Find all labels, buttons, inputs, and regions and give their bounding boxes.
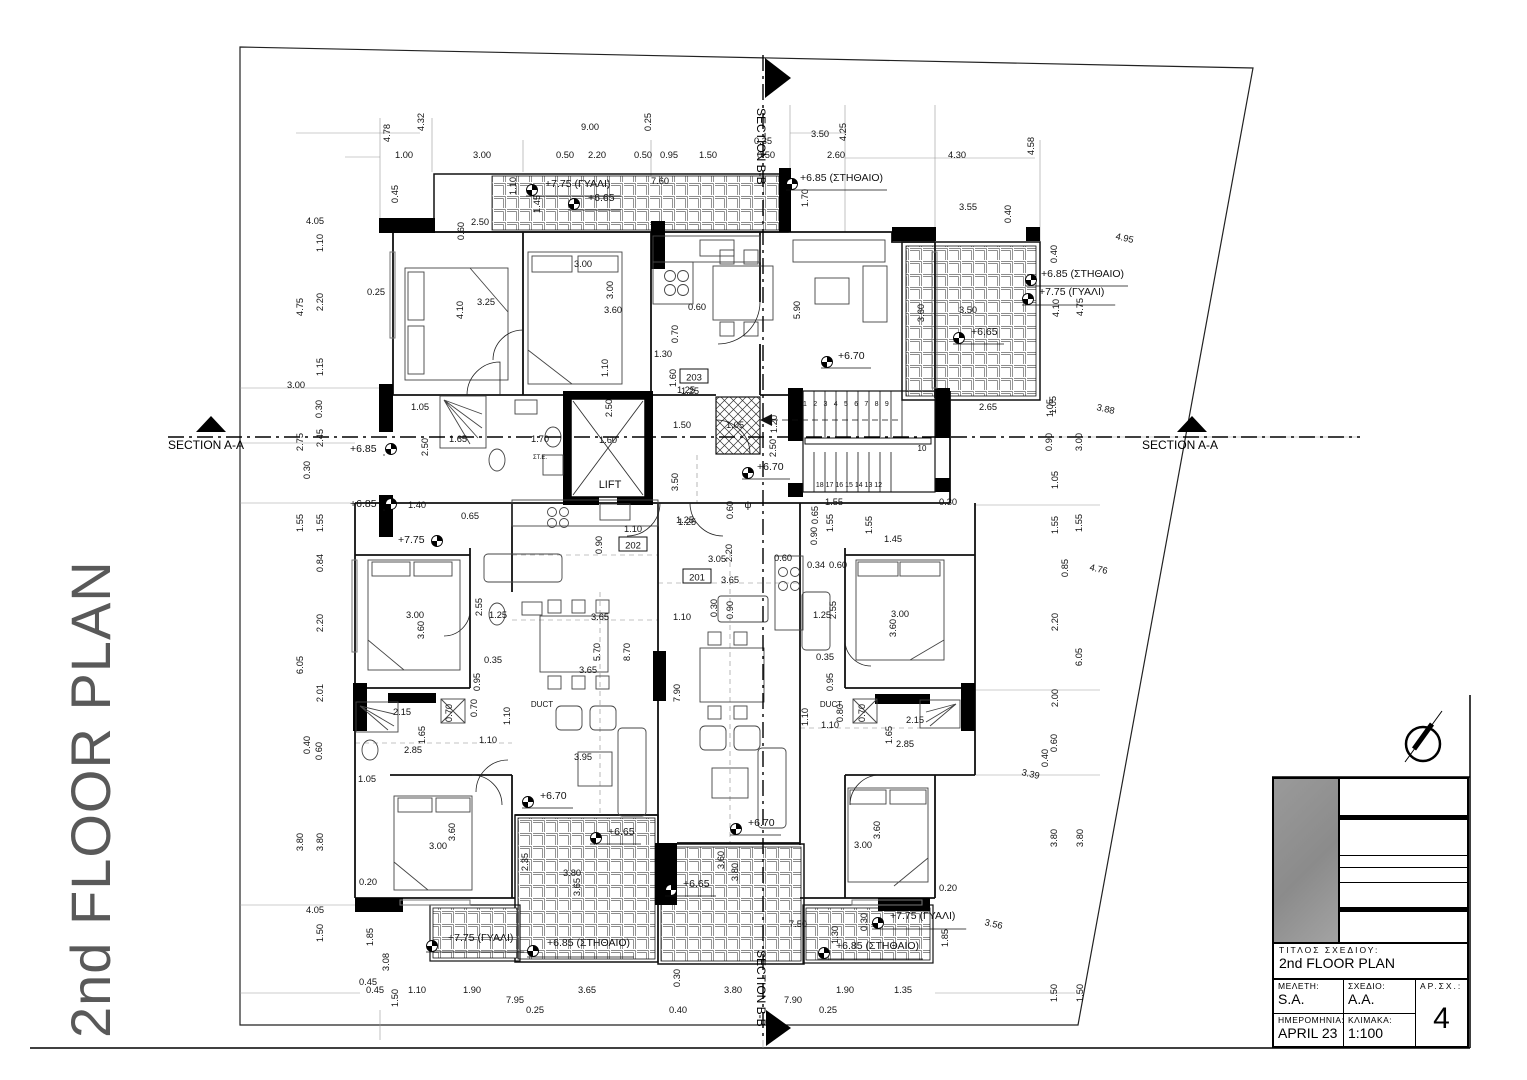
dimension-label: 0.90 — [725, 601, 735, 619]
dimension-label: 3.60 — [416, 621, 426, 639]
level-label: +6.65 — [588, 192, 615, 204]
level-label: +7.75 — [398, 534, 425, 546]
dimension-label: 7.90 — [672, 684, 682, 702]
dimension-label: 1.50 — [315, 924, 325, 942]
dimension-label: 1.10 — [673, 612, 691, 622]
dimension-label: 3.50 — [811, 129, 829, 139]
dimension-label: 1.05 — [1045, 399, 1055, 417]
dimension-label: 4.58 — [1026, 137, 1036, 155]
dimension-label: 0.95 — [660, 150, 678, 160]
section-bb-bottom-label: SECTION B-B — [754, 950, 768, 1027]
dimension-label: 1.90 — [463, 985, 481, 995]
dimension-label: 0.35 — [754, 136, 772, 146]
dimension-label: 1.50 — [1075, 984, 1085, 1002]
dimension-label: 2.20 — [724, 544, 734, 562]
dimension-label: 4.95 — [1115, 231, 1135, 245]
dimension-label: 0.40 — [302, 736, 312, 754]
dimension-label: 0.40 — [669, 1005, 687, 1015]
dimension-label: 1.60 — [599, 435, 617, 445]
dimension-label: 0.34 — [807, 560, 825, 570]
fixture-label: ψ — [744, 500, 751, 511]
dimension-label: 1.05 — [1050, 471, 1060, 489]
level-label: +6.85 — [350, 443, 377, 455]
dimension-label: 2.20 — [315, 614, 325, 632]
dimension-label: 3.00 — [287, 380, 305, 390]
dashed-reference-lines — [355, 455, 935, 843]
dimension-label: 1.65 — [417, 726, 427, 744]
dimension-label: 1.25 — [489, 610, 507, 620]
dimension-label: 1.55 — [864, 516, 874, 534]
level-label: +6.85 (ΣΤΗΘΑΙΟ) — [1041, 268, 1124, 280]
dimension-label: 0.40 — [1003, 205, 1013, 223]
dimension-label: 9.00 — [581, 122, 599, 132]
dimension-label: 5.70 — [592, 643, 602, 661]
dimension-label: 0.45 — [390, 185, 400, 203]
dimension-label: 2.75 — [295, 433, 305, 451]
dimension-label: 0.30 — [859, 913, 869, 931]
dimension-label: 1.10 — [821, 720, 839, 730]
dimension-label: 3.80 — [724, 985, 742, 995]
dimension-label: 0.90 — [809, 527, 819, 545]
dimension-label: 6.05 — [1074, 648, 1084, 666]
level-label: +6.70 — [748, 817, 775, 829]
dimension-label: 3.60 — [716, 851, 726, 869]
scale-label: ΚΛΙΜΑΚΑ: — [1348, 1015, 1411, 1025]
dimension-label: 0.30 — [672, 969, 682, 987]
dimension-label: 2.15 — [393, 707, 411, 717]
dimension-label: 0.30 — [709, 599, 719, 617]
dimension-label: 1.45 — [532, 195, 542, 213]
section-bb-bottom-arrow — [766, 1010, 791, 1046]
dimension-label: 1.55 — [1074, 514, 1084, 532]
sheet-number-value: 4 — [1416, 992, 1467, 1046]
dimension-label: 0.25 — [526, 1005, 544, 1015]
dimension-label: 1.70 — [800, 189, 810, 207]
dimension-label: 0.60 — [314, 742, 324, 760]
dimension-label: 3.00 — [473, 150, 491, 160]
dimension-label: 1.20 — [769, 415, 779, 433]
dimension-label: 1.10 — [800, 708, 810, 726]
scale-cell: ΚΛΙΜΑΚΑ: 1:100 — [1344, 1013, 1415, 1047]
dimension-label: 1.10 — [600, 359, 610, 377]
dimension-label: 1.15 — [315, 358, 325, 376]
fixture-label: DUCT — [820, 700, 842, 709]
dimension-label: 3.95 — [574, 752, 592, 762]
dimension-label: 3.80 — [1049, 829, 1059, 847]
dimension-label: 0.30 — [314, 400, 324, 418]
title-block: ΤΙΤΛΟΣ ΣΧΕΔΙΟΥ: 2nd FLOOR PLAN ΜΕΛΕΤΗ: S… — [1272, 777, 1469, 1048]
level-label: +6.85 (ΣΤΗΘΑΙΟ) — [800, 172, 883, 184]
room-number: 201 — [689, 573, 705, 584]
dimension-label: 3.65 — [579, 665, 597, 675]
dimension-label: 1.00 — [395, 150, 413, 160]
dimension-label: 2.85 — [404, 745, 422, 755]
fixture-label: DUCT — [531, 700, 553, 709]
dimension-label: 0.35 — [484, 655, 502, 665]
dimension-label: 1.50 — [390, 989, 400, 1007]
balcony-tiles — [430, 174, 1040, 964]
dimension-label: 1.10 — [508, 177, 518, 195]
dimension-label: 1.55 — [295, 514, 305, 532]
dimension-label: 3.80 — [295, 833, 305, 851]
dimension-label: 0.60 — [725, 501, 735, 519]
drawing-title-cell: ΤΙΤΛΟΣ ΣΧΕΔΙΟΥ: 2nd FLOOR PLAN — [1274, 944, 1467, 980]
dimension-label: 2.15 — [906, 715, 924, 725]
dimension-label: 2.20 — [588, 150, 606, 160]
fixture-label: ΣΤ.Ε. — [533, 455, 547, 461]
dimension-label: 0.95 — [472, 673, 482, 691]
section-aa-left-label: SECTION A-A — [168, 438, 244, 452]
dimension-label: 4.75 — [1075, 298, 1085, 316]
dimension-label: 1.30 — [654, 349, 672, 359]
sheet-number-cell: ΑΡ.ΣΧ.: 4 — [1416, 980, 1467, 1046]
dimension-label: 0.70 — [444, 704, 454, 722]
dimension-label: 2.01 — [315, 684, 325, 702]
logo-lines-panel — [1340, 779, 1467, 942]
drawing-title-label: ΤΙΤΛΟΣ ΣΧΕΔΙΟΥ: — [1279, 945, 1462, 955]
dimension-label: 0.60 — [829, 560, 847, 570]
dimension-label: 8.70 — [622, 643, 632, 661]
dimension-label: 2.50 — [768, 439, 778, 457]
section-aa-right-label: SECTION A-A — [1142, 438, 1218, 452]
dimension-label: 3.00 — [605, 281, 615, 299]
dimension-label: 0.90 — [1044, 433, 1054, 451]
dimension-label: 0.40 — [1040, 749, 1050, 767]
title-block-grid: ΜΕΛΕΤΗ: S.A. ΗΜΕΡΟΜΗΝΙΑ: APRIL 23 ΣΧΕΔΙΟ… — [1274, 980, 1467, 1046]
dimension-label: 0.45 — [366, 985, 384, 995]
dimension-label: 3.00 — [854, 840, 872, 850]
date-label: ΗΜΕΡΟΜΗΝΙΑ: — [1278, 1015, 1339, 1025]
dimension-label: 0.70 — [469, 699, 479, 717]
dimension-label: 2.55 — [474, 598, 484, 616]
dimension-label: 4.76 — [1089, 562, 1109, 576]
date-value: APRIL 23 — [1278, 1025, 1339, 1041]
dimension-label: 0.30 — [939, 497, 957, 507]
drawing-sheet: SECTION A-A SECTION A-A SECTION B-B SECT… — [0, 0, 1527, 1080]
level-label: +6.70 — [838, 350, 865, 362]
dimension-label: 0.25 — [819, 1005, 837, 1015]
north-arrow-icon — [1405, 711, 1442, 762]
dimension-label: 0.20 — [359, 877, 377, 887]
dimension-label: 1.10 — [479, 735, 497, 745]
dimension-label: 0.30 — [302, 461, 312, 479]
fixture-label: LIFT — [599, 479, 622, 491]
dimension-label: 0.40 — [1049, 245, 1059, 263]
dimension-label: 1.40 — [408, 500, 426, 510]
dimension-label: 1.05 — [726, 420, 744, 430]
dimension-label: 3.39 — [1021, 767, 1041, 781]
dimension-label: 0.65 — [461, 511, 479, 521]
dimension-label: 1.85 — [365, 928, 375, 946]
level-label: +6.70 — [757, 461, 784, 473]
level-label: +6.85 — [350, 498, 377, 510]
dimension-label: 1.90 — [836, 985, 854, 995]
dimension-label: 0.60 — [774, 553, 792, 563]
level-label: +7.75 (ΓΥΑΛΙ) — [545, 178, 610, 190]
meleti-value: S.A. — [1278, 991, 1339, 1007]
dimension-label: 1.70 — [531, 434, 549, 444]
dimension-label: 1.10 — [502, 707, 512, 725]
title-block-logo — [1274, 779, 1467, 944]
dimension-label: 1.50 — [699, 150, 717, 160]
stair-bottom-numbers: 18 17 16 15 14 13 12 — [816, 482, 882, 489]
level-label: +6.85 (ΣΤΗΘΑΙΟ) — [547, 937, 630, 949]
dimension-label: 3.80 — [315, 833, 325, 851]
sxedio-value: A.A. — [1348, 991, 1411, 1007]
dimension-label: 3.88 — [1096, 402, 1116, 416]
dimension-label: 6.05 — [295, 656, 305, 674]
dimension-label: 3.08 — [381, 953, 391, 971]
dimension-label: 2.45 — [315, 429, 325, 447]
dimension-label: 3.65 — [591, 612, 609, 622]
dimension-label: 4.30 — [948, 150, 966, 160]
dimension-label: 2.60 — [827, 150, 845, 160]
dimension-label: 3.50 — [959, 305, 977, 315]
dimension-label: 3.65 — [572, 878, 582, 896]
dimension-label: 3.00 — [574, 259, 592, 269]
dimension-label: 1.05 — [411, 402, 429, 412]
dimension-label: 1.55 — [825, 497, 843, 507]
level-label: +6.65 — [608, 826, 635, 838]
dimension-label: 0.65 — [810, 506, 820, 524]
dimension-label: 3.00 — [891, 609, 909, 619]
dimension-label: 0.35 — [816, 652, 834, 662]
dimension-label: 1.65 — [884, 726, 894, 744]
section-aa-right-arrow — [1177, 416, 1207, 432]
dimension-label: 1.25 — [813, 610, 831, 620]
level-label: +6.65 — [971, 326, 998, 338]
dimension-label: 2.85 — [896, 739, 914, 749]
dimension-label: 0.84 — [315, 554, 325, 572]
dimension-label: 1.25 — [676, 515, 694, 525]
room-number: 202 — [625, 541, 641, 552]
dimension-label: 3.80 — [1075, 829, 1085, 847]
dimension-label: 2.50 — [420, 438, 430, 456]
dimension-label: 1.45 — [884, 534, 902, 544]
section-bb-top-arrow — [765, 58, 791, 98]
dimension-label: 1.10 — [315, 234, 325, 252]
dimension-label: 0.60 — [456, 222, 466, 240]
dimension-label: 4.05 — [306, 216, 324, 226]
dimension-label: 1.65 — [449, 434, 467, 444]
dimension-label: 0.70 — [670, 325, 680, 343]
dimension-label: 1.55 — [1050, 516, 1060, 534]
dimension-label: 0.70 — [857, 704, 867, 722]
dimension-label: 3.60 — [872, 821, 882, 839]
dimension-label: 1.10 — [408, 985, 426, 995]
scale-value: 1:100 — [1348, 1025, 1411, 1041]
dimension-label: 0.90 — [594, 536, 604, 554]
dimension-label: 3.00 — [406, 610, 424, 620]
level-label: +6.85 (ΣΤΗΘΑΙΟ) — [836, 940, 919, 952]
dimension-label: 3.60 — [447, 823, 457, 841]
section-bb-top-label: SECTION B-B — [754, 108, 768, 185]
level-label: +6.65 — [683, 878, 710, 890]
dimension-label: 4.10 — [455, 301, 465, 319]
dimension-label: 3.55 — [959, 202, 977, 212]
dimension-label: 7.90 — [784, 995, 802, 1005]
dimension-label: 7.50 — [789, 919, 807, 929]
dimension-label: 3.25 — [477, 297, 495, 307]
dimension-label: 1.55 — [825, 514, 835, 532]
dimension-label: 7.95 — [506, 995, 524, 1005]
dimension-label: 4.78 — [382, 124, 392, 142]
dimension-label: 1.50 — [1049, 984, 1059, 1002]
sheet-title-vertical: 2nd FLOOR PLAN — [58, 560, 123, 1038]
section-aa-left-arrow — [196, 416, 226, 432]
dimension-label: 3.60 — [888, 619, 898, 637]
dimension-label: 4.75 — [295, 298, 305, 316]
dimension-label: 3.65 — [721, 575, 739, 585]
dimension-label: 0.50 — [757, 150, 775, 160]
level-label: +7.75 (ΓΥΑΛΙ) — [448, 932, 513, 944]
meleti-label: ΜΕΛΕΤΗ: — [1278, 981, 1339, 991]
dimension-label: 3.65 — [578, 985, 596, 995]
stair-top-numbers: 1 2 3 4 5 6 7 8 9 — [803, 401, 891, 408]
dimension-label: 2.20 — [1050, 613, 1060, 631]
logo-gray-panel — [1274, 779, 1340, 942]
room-number: 203 — [686, 373, 702, 384]
sxedio-cell: ΣΧΕΔΙΟ: A.A. — [1344, 980, 1415, 1013]
dimension-label: 5.90 — [792, 301, 802, 319]
date-cell: ΗΜΕΡΟΜΗΝΙΑ: APRIL 23 — [1274, 1013, 1343, 1047]
level-label: +6.70 — [540, 790, 567, 802]
dimension-label: 0.60 — [1049, 734, 1059, 752]
dimension-label: 2.35 — [520, 853, 530, 871]
dimension-label: 3.60 — [916, 304, 926, 322]
dimension-label: 3.80 — [563, 868, 581, 878]
sxedio-label: ΣΧΕΔΙΟ: — [1348, 981, 1411, 991]
level-label: +7.75 (ΓΥΑΛΙ) — [1039, 286, 1104, 298]
dimension-label: 2.50 — [604, 399, 614, 417]
dimension-label: 3.00 — [1074, 433, 1084, 451]
dimension-label: 0.85 — [1060, 559, 1070, 577]
dimension-label: 3.50 — [670, 473, 680, 491]
dimension-label: 0.20 — [939, 883, 957, 893]
doors — [444, 302, 880, 805]
meleti-cell: ΜΕΛΕΤΗ: S.A. — [1274, 980, 1343, 1013]
dimension-label: 2.00 — [1050, 689, 1060, 707]
dimension-label: 1.25 — [677, 385, 695, 395]
dimension-label: 7.60 — [651, 176, 669, 186]
dimension-label: 4.10 — [1051, 299, 1061, 317]
stair-landing-number: 10 — [918, 444, 927, 453]
dimension-label: 0.50 — [556, 150, 574, 160]
level-label: +7.75 (ΓΥΑΛΙ) — [890, 910, 955, 922]
dimension-label: 2.20 — [315, 293, 325, 311]
sheet-number-label: ΑΡ.ΣΧ.: — [1416, 980, 1467, 992]
dimension-label: 0.25 — [643, 113, 653, 131]
dimension-label: 0.60 — [688, 302, 706, 312]
dimension-label: 1.85 — [940, 929, 950, 947]
dimension-label: 1.50 — [673, 420, 691, 430]
dimension-label: 4.32 — [416, 113, 426, 131]
dimension-label: 3.80 — [730, 863, 740, 881]
dimension-label: 1.55 — [315, 514, 325, 532]
dimension-label: 3.56 — [984, 917, 1004, 931]
dimension-label: 1.05 — [358, 774, 376, 784]
dimension-label: 1.10 — [624, 524, 642, 534]
dimension-label: 4.05 — [306, 905, 324, 915]
dimension-label: 0.95 — [825, 673, 835, 691]
dimension-label: 4.25 — [838, 123, 848, 141]
dimension-label: 2.50 — [471, 217, 489, 227]
dimension-label: 3.00 — [429, 841, 447, 851]
dimension-label: 3.60 — [604, 305, 622, 315]
dimension-label: 0.50 — [634, 150, 652, 160]
dimension-label: 0.25 — [367, 287, 385, 297]
dimension-label: 2.65 — [979, 402, 997, 412]
drawing-title-value: 2nd FLOOR PLAN — [1279, 955, 1462, 971]
stair-numbers: 1 2 3 4 5 6 7 8 9 18 17 16 15 14 13 12 1… — [803, 401, 927, 489]
dimension-label: 1.35 — [894, 985, 912, 995]
